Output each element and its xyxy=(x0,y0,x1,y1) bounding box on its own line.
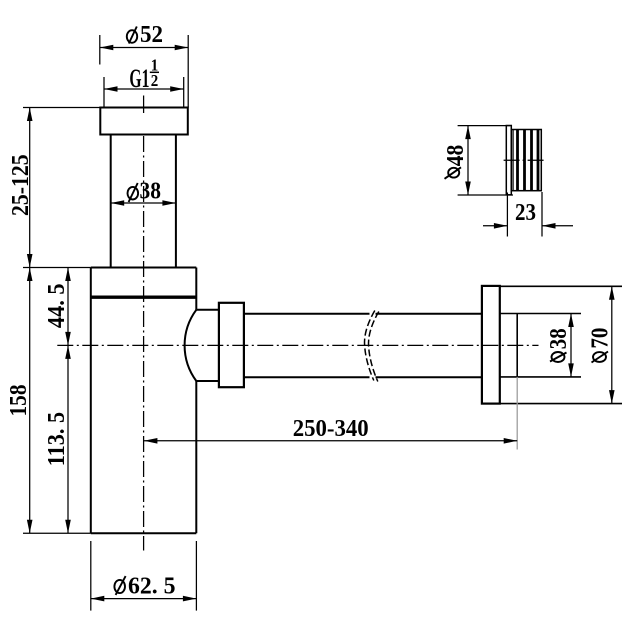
svg-text:38: 38 xyxy=(546,328,572,349)
svg-text:250-340: 250-340 xyxy=(293,416,369,442)
svg-text:25-125: 25-125 xyxy=(8,154,34,216)
svg-text:48: 48 xyxy=(443,145,469,167)
svg-text:38: 38 xyxy=(140,178,162,204)
svg-text:52: 52 xyxy=(140,22,163,48)
svg-text:158: 158 xyxy=(6,385,32,417)
svg-text:113. 5: 113. 5 xyxy=(44,412,70,466)
svg-text:62. 5: 62. 5 xyxy=(128,574,176,600)
svg-text:23: 23 xyxy=(515,200,536,226)
svg-text:G1: G1 xyxy=(129,64,149,93)
svg-text:44. 5: 44. 5 xyxy=(44,283,70,328)
svg-text:2: 2 xyxy=(151,71,159,90)
svg-text:70: 70 xyxy=(588,328,614,349)
